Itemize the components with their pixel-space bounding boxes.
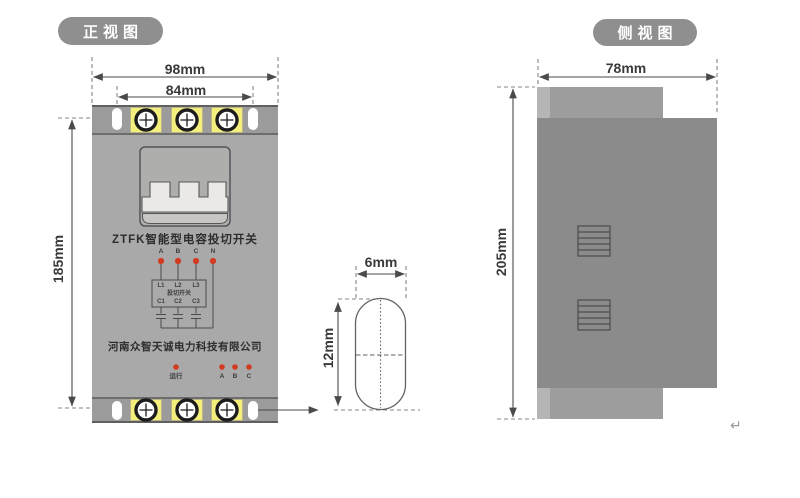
phase-b-label: B: [233, 374, 238, 381]
run-led: [173, 364, 179, 370]
dim-78mm: 78mm: [606, 60, 646, 76]
input-label-n: N: [211, 249, 216, 256]
input-label-b: B: [176, 249, 181, 256]
phase-a-led: [219, 364, 225, 370]
vent-grille-icon: [578, 300, 610, 330]
screw-terminal-icon: [136, 400, 237, 420]
terminal-dot: [210, 258, 216, 264]
dimension-drawing-canvas: 正视图 侧视图: [0, 0, 800, 498]
breaker-base: [143, 214, 228, 224]
input-label-c: C: [194, 249, 199, 256]
dim-185mm: 185mm: [50, 235, 66, 283]
phase-c-led: [246, 364, 252, 370]
return-mark: ↵: [730, 417, 742, 434]
screw-terminal-icon: [136, 110, 237, 130]
terminal-dot: [193, 258, 199, 264]
input-label-a: A: [159, 249, 164, 256]
device-title: ZTFK智能型电容投切开关: [92, 231, 278, 247]
run-led-label: 运行: [170, 374, 183, 381]
phase-c-label: C: [247, 374, 252, 381]
dim-84mm: 84mm: [166, 82, 206, 98]
dim-205mm: 205mm: [493, 228, 509, 276]
box-label-l3: L3: [192, 283, 199, 289]
drawing-linework: [0, 0, 800, 498]
dim-98mm: 98mm: [165, 61, 205, 77]
breaker-handles-icon: [142, 182, 228, 212]
company-name: 河南众智天诚电力科技有限公司: [92, 339, 278, 354]
dim-6mm: 6mm: [365, 254, 398, 270]
box-label-l1: L1: [157, 283, 164, 289]
indicator-leds: [173, 364, 252, 370]
terminal-dot: [175, 258, 181, 264]
dim-12mm: 12mm: [320, 328, 336, 368]
vent-grille-icon: [578, 226, 610, 256]
breaker-window: [140, 147, 230, 226]
terminal-dot: [158, 258, 164, 264]
phase-a-label: A: [220, 374, 225, 381]
box-label-c3: C3: [192, 299, 200, 305]
phase-b-led: [232, 364, 238, 370]
slot-detail-drawing: [334, 266, 420, 410]
side-dimension-lines: [497, 59, 717, 419]
box-label-c1: C1: [157, 299, 165, 305]
box-label-l2: L2: [174, 283, 181, 289]
box-label-c2: C2: [174, 299, 182, 305]
box-label-center: 投切开关: [167, 291, 191, 297]
